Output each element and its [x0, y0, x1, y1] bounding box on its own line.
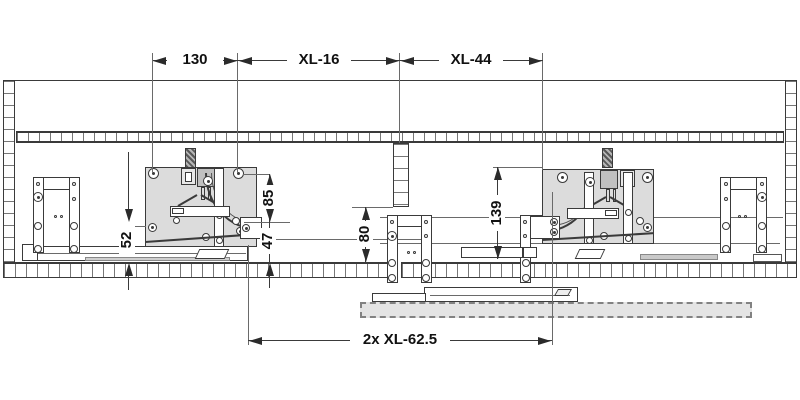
- screw-hole: [173, 217, 180, 224]
- bracket-web: [397, 215, 422, 227]
- screw-hole: [522, 274, 530, 282]
- arrowhead: [224, 57, 237, 65]
- left-door-catch: [195, 249, 230, 259]
- fixing-screw: [242, 224, 250, 232]
- extension-line: [237, 53, 238, 173]
- screw-hole: [636, 217, 644, 225]
- bottom-panel-right: [401, 262, 797, 278]
- floor-guide-inner-line: [430, 295, 570, 296]
- arrowhead: [362, 249, 370, 262]
- arrowhead: [266, 263, 274, 276]
- screw-hole: [34, 245, 42, 253]
- side-panel-left: [3, 80, 15, 263]
- dimension-label-52: 52: [119, 226, 135, 254]
- screw-hole: [760, 182, 764, 186]
- bracket-rail: [421, 215, 432, 283]
- technical-drawing-canvas: 130 XL-16 XL-44 52 85 47 80 139 2x XL-62…: [0, 0, 800, 400]
- bracket-rail: [756, 177, 767, 253]
- screw-hole: [424, 234, 428, 238]
- screw-hole: [413, 251, 416, 254]
- screw-hole: [424, 220, 428, 224]
- fixing-screw: [642, 172, 653, 183]
- screw-hole: [70, 222, 78, 230]
- screw-hole: [625, 209, 632, 216]
- dimension-label-139: 139: [489, 195, 505, 231]
- pin-holder-inner: [185, 172, 192, 182]
- dimension-tail-47: [269, 276, 270, 288]
- screw-hole: [407, 251, 410, 254]
- arrowhead: [529, 57, 542, 65]
- screw-hole: [72, 182, 76, 186]
- roller: [203, 176, 213, 186]
- dimension-label-80: 80: [357, 221, 373, 247]
- slot-insert: [605, 210, 617, 216]
- screw-hole: [625, 235, 632, 242]
- arrowhead: [386, 57, 399, 65]
- arrowhead: [494, 167, 502, 180]
- arrowhead: [494, 246, 502, 259]
- right-door-catch: [575, 249, 606, 259]
- right-rail-endpiece: [753, 254, 782, 262]
- screw-head: [33, 192, 43, 202]
- door-panel-dashed: [360, 302, 752, 318]
- right-rail-box: [461, 247, 523, 258]
- screw-hole: [724, 197, 728, 201]
- screw-hole: [523, 220, 527, 224]
- extension-line: [399, 53, 400, 143]
- screw-hole: [36, 182, 40, 186]
- screw-hole: [388, 274, 396, 282]
- dimension-label-85: 85: [261, 185, 277, 211]
- fixing-screw: [643, 223, 652, 232]
- cabinet-top-edge: [15, 80, 785, 81]
- back-panel: [16, 131, 784, 143]
- extension-line: [248, 245, 249, 345]
- screw-hole: [72, 197, 76, 201]
- leader-line: [352, 207, 393, 208]
- screw-hole: [724, 182, 728, 186]
- floor-guide-profile-left: [372, 293, 426, 302]
- roller: [585, 177, 595, 187]
- screw-hole: [216, 237, 223, 244]
- fixing-screw: [557, 172, 568, 183]
- arrowhead: [239, 57, 252, 65]
- screw-hole: [522, 259, 530, 267]
- screw-hole: [758, 222, 766, 230]
- pivot-pin: [602, 148, 613, 168]
- fixing-screw: [148, 223, 157, 232]
- slot-insert: [172, 208, 184, 214]
- right-rail-hook: [523, 247, 537, 258]
- arrowhead: [125, 209, 133, 222]
- fixing-screw: [233, 168, 244, 179]
- screw-hole: [722, 222, 730, 230]
- dimension-line-52: [128, 152, 129, 209]
- extension-line: [552, 192, 553, 345]
- arrowhead: [249, 337, 262, 345]
- dimension-label-bottom: 2x XL-62.5: [350, 332, 450, 348]
- screw-head: [387, 231, 397, 241]
- bracket-rail: [69, 177, 80, 253]
- side-panel-right: [785, 80, 797, 263]
- screw-hole: [722, 245, 730, 253]
- screw-hole: [34, 222, 42, 230]
- screw-hole: [738, 215, 741, 218]
- arrowhead: [401, 57, 414, 65]
- arrowhead: [125, 263, 133, 276]
- right-rail-insert: [640, 254, 718, 260]
- bottom-panel-left: [3, 262, 397, 278]
- screw-hole: [232, 217, 240, 225]
- screw-hole: [54, 215, 57, 218]
- screw-hole: [60, 215, 63, 218]
- screw-hole: [388, 259, 396, 267]
- arrowhead: [153, 57, 166, 65]
- dimension-label-47: 47: [260, 228, 276, 254]
- dimension-label-130: 130: [167, 52, 223, 68]
- extension-line: [542, 53, 543, 170]
- screw-hole: [523, 234, 527, 238]
- dimension-tail-52: [128, 276, 129, 290]
- dimension-label-xl44: XL-44: [439, 52, 503, 68]
- bracket-web: [43, 177, 70, 190]
- screw-hole: [744, 215, 747, 218]
- arrowhead: [538, 337, 551, 345]
- extension-line: [152, 53, 153, 173]
- pivot-pin: [185, 148, 196, 168]
- leader-line: [270, 239, 425, 240]
- screw-hole: [758, 245, 766, 253]
- arrowhead: [362, 207, 370, 220]
- leader-line: [244, 222, 290, 223]
- screw-head: [757, 192, 767, 202]
- screw-hole: [70, 245, 78, 253]
- screw-hole: [422, 274, 430, 282]
- screw-hole: [390, 220, 394, 224]
- fixing-screw: [148, 168, 159, 179]
- slider-block: [600, 170, 618, 189]
- screw-hole: [422, 259, 430, 267]
- bracket-web: [730, 177, 757, 190]
- dimension-label-xl16: XL-16: [287, 52, 351, 68]
- arrowhead: [266, 209, 274, 222]
- center-partition: [393, 143, 409, 207]
